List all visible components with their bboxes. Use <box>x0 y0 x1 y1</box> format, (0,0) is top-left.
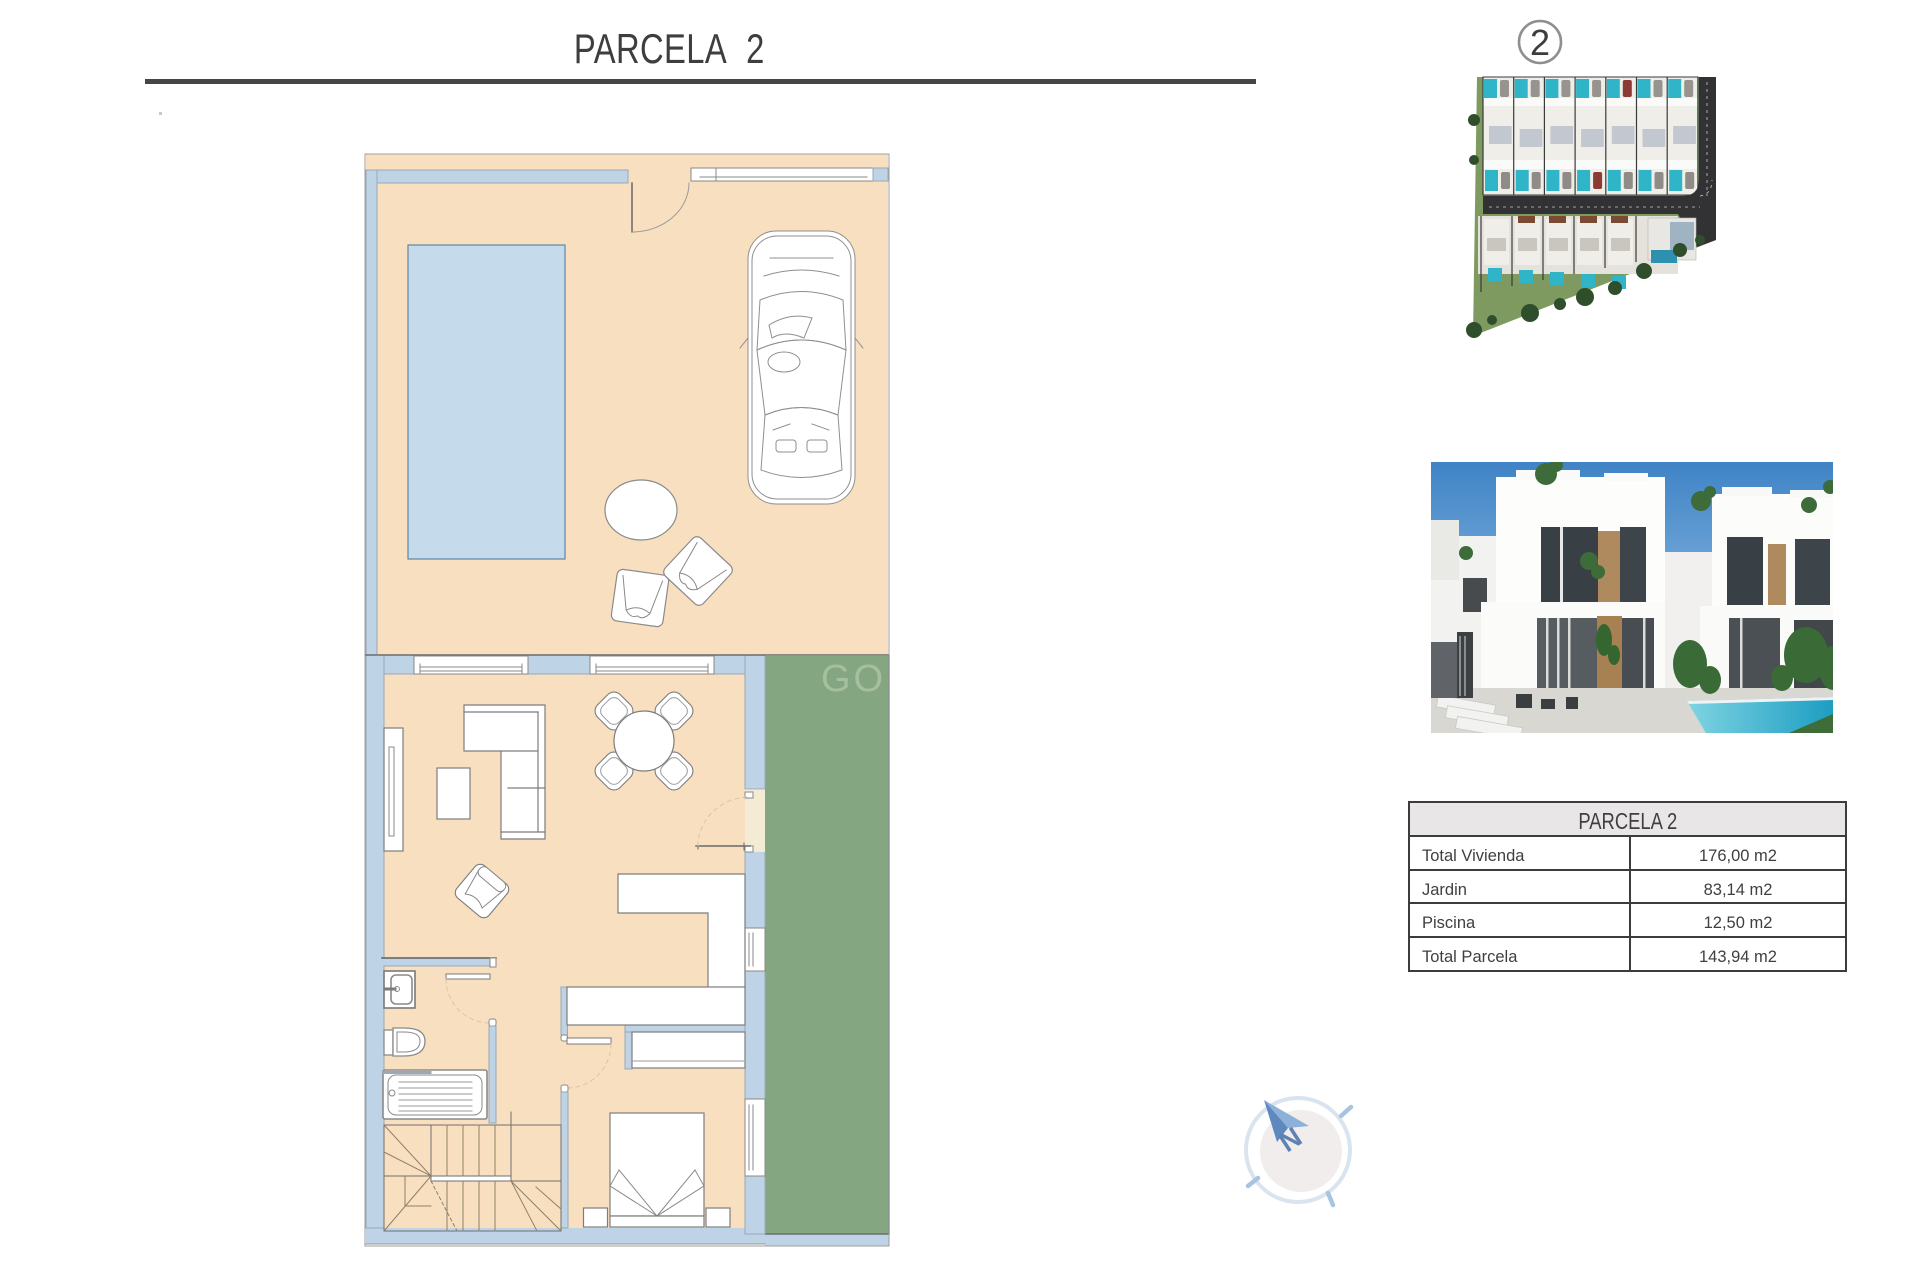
svg-text:2: 2 <box>1530 22 1550 63</box>
svg-text:GOL: GOL <box>821 658 910 700</box>
